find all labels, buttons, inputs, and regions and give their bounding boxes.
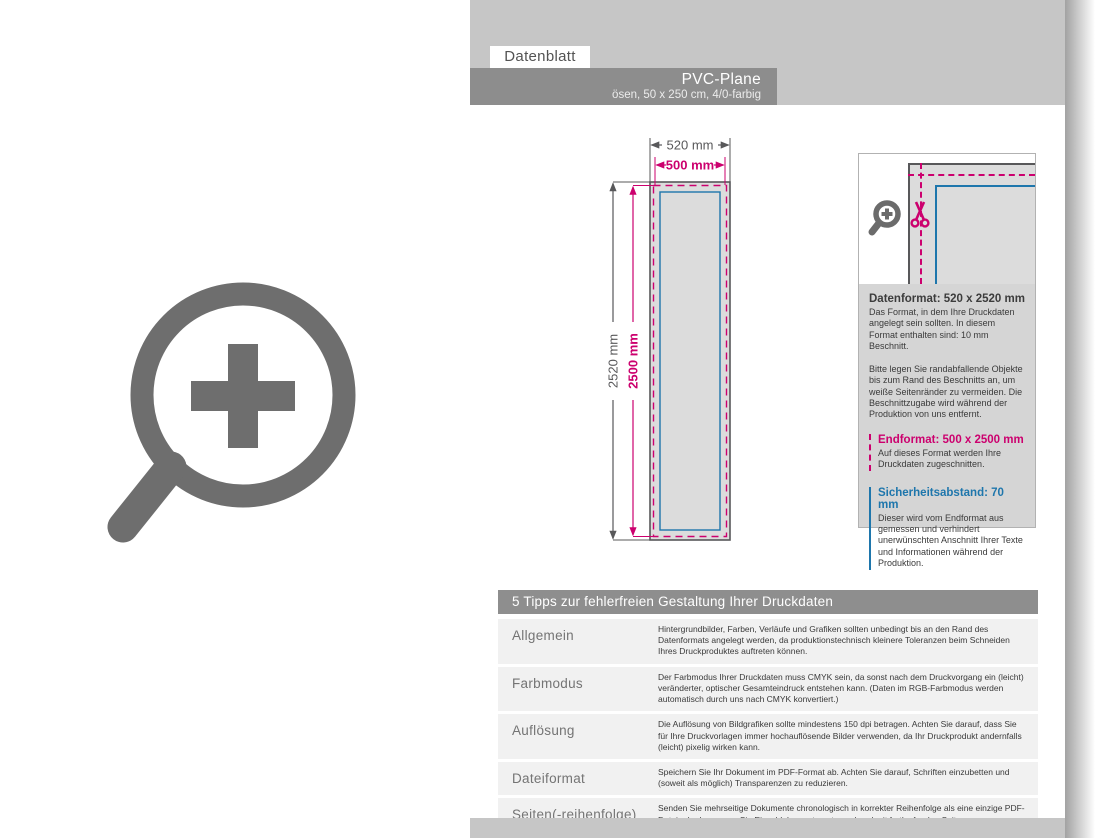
banner-datenformat-rect	[650, 182, 730, 540]
tab-datenblatt[interactable]: Datenblatt	[490, 46, 590, 68]
dim-width-inner: 500 mm	[666, 158, 714, 173]
tips-title: 5 Tipps zur fehlerfreien Gestaltung Ihre…	[498, 590, 1038, 614]
tip-row-text: Der Farbmodus Ihrer Druckdaten muss CMYK…	[658, 667, 1038, 712]
endformat-title: Endformat: 500 x 2500 mm	[878, 434, 1026, 446]
tips-table: Allgemein Hintergrundbilder, Farben, Ver…	[498, 619, 1038, 832]
dim-height-outer: 2520 mm	[606, 334, 621, 388]
table-row: Farbmodus Der Farbmodus Ihrer Druckdaten…	[498, 667, 1038, 712]
tip-row-text: Speichern Sie Ihr Dokument im PDF-Format…	[658, 762, 1038, 795]
datenformat-text-2: Bitte legen Sie randabfallende Objekte b…	[869, 364, 1026, 421]
page-footer-strip	[470, 818, 1065, 838]
datenformat-title: Datenformat: 520 x 2520 mm	[869, 293, 1026, 305]
product-subtitle: ösen, 50 x 250 cm, 4/0-farbig	[470, 88, 761, 102]
sicherheitsabstand-title: Sicherheitsabstand: 70 mm	[878, 487, 1026, 511]
dim-height-inner: 2500 mm	[626, 333, 641, 389]
product-title: PVC-Plane	[470, 71, 761, 88]
corner-detail-view	[859, 154, 1035, 284]
endformat-block: Endformat: 500 x 2500 mm Auf dieses Form…	[869, 434, 1026, 471]
datenformat-text-1: Das Format, in dem Ihre Druckdaten angel…	[869, 307, 1026, 353]
tip-row-label: Allgemein	[498, 619, 658, 664]
datasheet-page: Datenblatt PVC-Plane ösen, 50 x 250 cm, …	[470, 0, 1065, 838]
tip-row-label: Farbmodus	[498, 667, 658, 712]
magnifier-icon	[865, 198, 905, 242]
tip-row-label: Auflösung	[498, 714, 658, 759]
page-edge-shadow	[1065, 0, 1095, 838]
dim-width-outer: 520 mm	[667, 138, 714, 153]
tips-section: 5 Tipps zur fehlerfreien Gestaltung Ihre…	[498, 590, 1038, 835]
zoom-in-icon[interactable]	[95, 265, 385, 565]
format-diagram: 520 mm 500 mm 2520 mm 2500 mm	[600, 130, 750, 550]
detail-safety-horizontal	[935, 185, 1035, 187]
tip-row-text: Die Auflösung von Bildgrafiken sollte mi…	[658, 714, 1038, 759]
detail-safety-vertical	[935, 185, 937, 284]
tip-row-label: Dateiformat	[498, 762, 658, 795]
table-row: Allgemein Hintergrundbilder, Farben, Ver…	[498, 619, 1038, 664]
detail-cutline-horizontal	[908, 174, 1035, 176]
format-legend: Datenformat: 520 x 2520 mm Das Format, i…	[859, 284, 1035, 527]
sicherheitsabstand-block: Sicherheitsabstand: 70 mm Dieser wird vo…	[869, 487, 1026, 570]
product-datasheet-view: Datenblatt PVC-Plane ösen, 50 x 250 cm, …	[0, 0, 1117, 838]
scissors-icon	[910, 196, 930, 230]
endformat-text: Auf dieses Format werden Ihre Druckdaten…	[878, 448, 1026, 471]
product-header: PVC-Plane ösen, 50 x 250 cm, 4/0-farbig	[470, 68, 777, 105]
sicherheitsabstand-text: Dieser wird vom Endformat aus gemessen u…	[878, 513, 1026, 570]
table-row: Auflösung Die Auflösung von Bildgrafiken…	[498, 714, 1038, 759]
table-row: Dateiformat Speichern Sie Ihr Dokument i…	[498, 762, 1038, 795]
format-info-box: Datenformat: 520 x 2520 mm Das Format, i…	[858, 153, 1036, 528]
tip-row-text: Hintergrundbilder, Farben, Verläufe und …	[658, 619, 1038, 664]
